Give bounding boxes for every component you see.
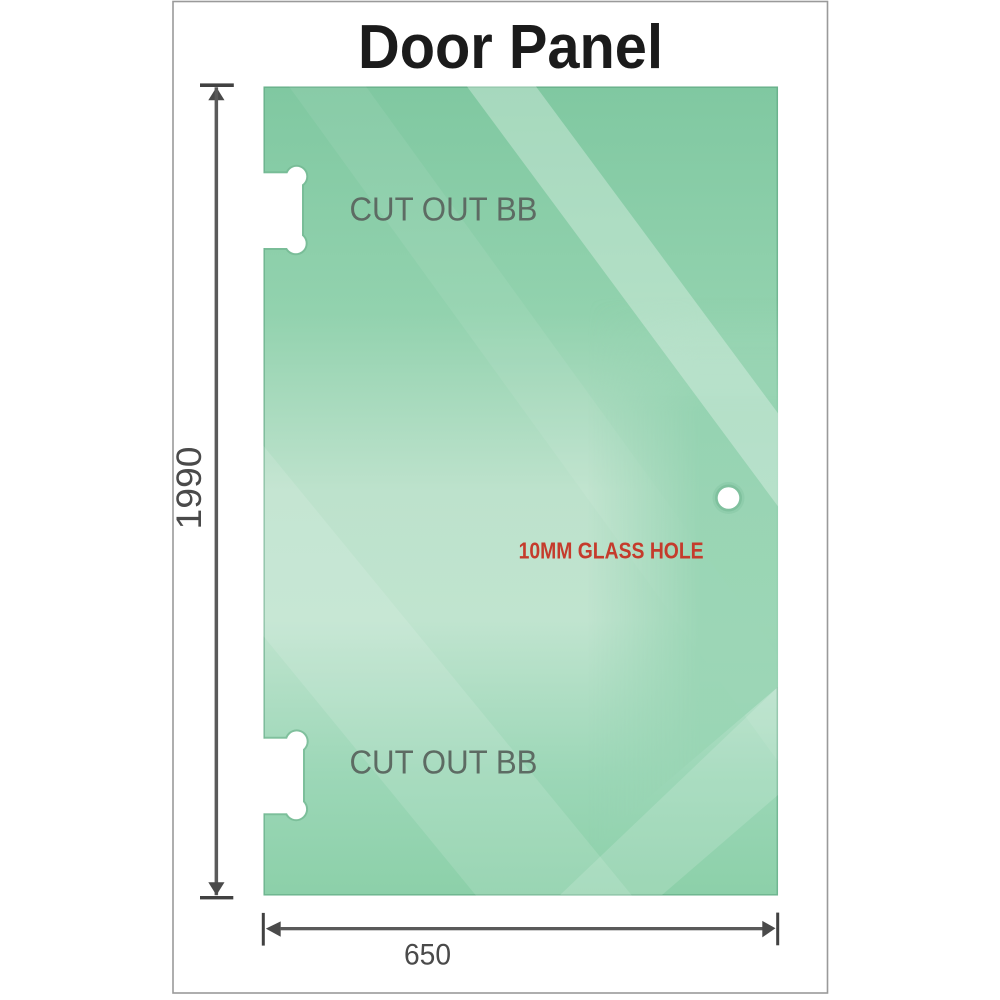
- svg-text:CUT OUT BB: CUT OUT BB: [350, 743, 538, 780]
- svg-text:1990: 1990: [170, 447, 209, 530]
- svg-text:CUT OUT BB: CUT OUT BB: [350, 190, 538, 227]
- svg-text:Door Panel: Door Panel: [358, 13, 663, 82]
- svg-text:10MM GLASS HOLE: 10MM GLASS HOLE: [519, 537, 704, 563]
- svg-text:650: 650: [404, 939, 451, 972]
